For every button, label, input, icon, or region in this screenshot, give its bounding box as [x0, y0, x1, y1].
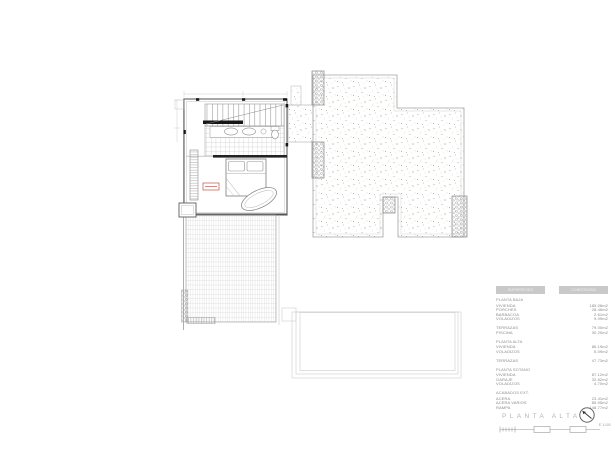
title-block: PLANTA ALTA E 1:100 [502, 413, 612, 449]
table-row: VOLADIZOS4.70m2 [496, 382, 608, 387]
pillow-right [247, 162, 263, 172]
bathroom [205, 126, 284, 156]
table-row: TERRAZAS47.73m2 [496, 359, 608, 364]
row-label: VOLADIZOS [496, 350, 520, 355]
table-row: PISCINA30.20m2 [496, 331, 608, 336]
row-value: 9.09m2 [594, 317, 608, 322]
floor-plan-sheet: SUPERFICIES CONSTRUIDA PLANTA BAJAVIVIEN… [0, 0, 615, 454]
row-label: TERRAZAS [496, 359, 518, 364]
row-value: 30.20m2 [592, 331, 608, 336]
sink-left [225, 128, 238, 135]
graphic-scale-bar [496, 422, 606, 434]
row-label: RAMPA [496, 406, 510, 411]
table-row: VOLADIZOS5.09m2 [496, 350, 608, 355]
row-value: 5.09m2 [594, 350, 608, 355]
row-value: 4.70m2 [594, 382, 608, 387]
table-section: TERRAZAS47.73m2 [496, 359, 608, 364]
pool-below-outline [282, 308, 461, 378]
wardrobe [190, 150, 198, 200]
table-section: TERRAZAS79.00m2PISCINA30.20m2 [496, 326, 608, 335]
header-cell-construida: CONSTRUIDA [559, 286, 608, 294]
section-heading: PLANTA BAJA [496, 298, 608, 303]
low-wall-hatch [182, 290, 188, 322]
section-heading: ACABADOS EXT. [496, 391, 608, 396]
row-label: VOLADIZOS [496, 382, 520, 387]
toilet [272, 130, 279, 139]
room-label-box [203, 183, 219, 190]
step-hatch [187, 318, 215, 324]
row-label: VOLADIZOS [496, 317, 520, 322]
staircase [203, 104, 284, 126]
scale-label: E 1:100 [599, 423, 611, 427]
sink-right [243, 128, 256, 135]
table-section: PLANTA BAJAVIVIENDA185.08m2PORCHES28.46m… [496, 298, 608, 322]
pillow-left [229, 162, 245, 172]
table-row: VOLADIZOS9.09m2 [496, 317, 608, 322]
areas-table: SUPERFICIES CONSTRUIDA PLANTA BAJAVIVIEN… [496, 286, 608, 415]
table-section: PLANTA SOTANOVIVIENDA87.12m2GARAJE32.82m… [496, 368, 608, 387]
upper-floor-plan [183, 98, 288, 215]
row-value: 47.73m2 [592, 359, 608, 364]
table-section: PLANTA ALTAVIVIENDA86.19m2VOLADIZOS5.09m… [496, 340, 608, 355]
row-label: PISCINA [496, 331, 513, 336]
areas-table-header: SUPERFICIES CONSTRUIDA [496, 286, 608, 294]
areas-table-body: PLANTA BAJAVIVIENDA185.08m2PORCHES28.46m… [496, 298, 608, 410]
header-cell-superficies: SUPERFICIES [496, 286, 545, 294]
